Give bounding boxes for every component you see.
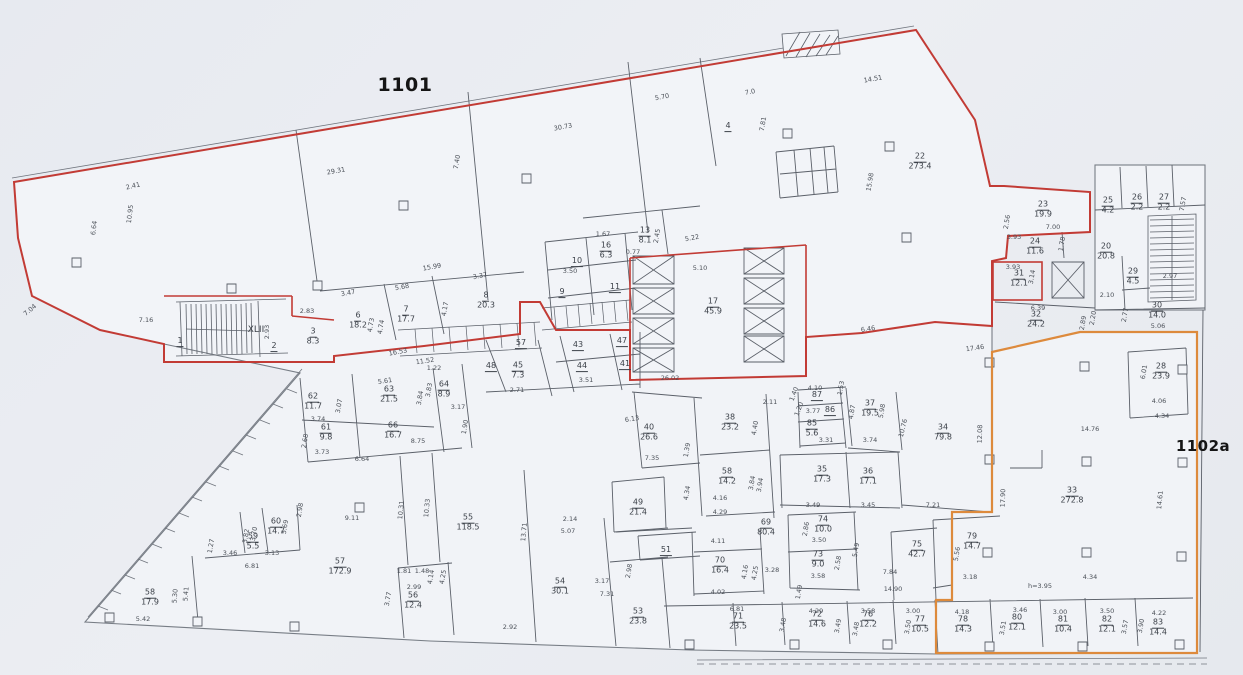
floor-plan: 1101 1102a 1238.34618.2717.7820.39101113… (0, 0, 1243, 675)
floor-plan-drawing (0, 0, 1243, 675)
